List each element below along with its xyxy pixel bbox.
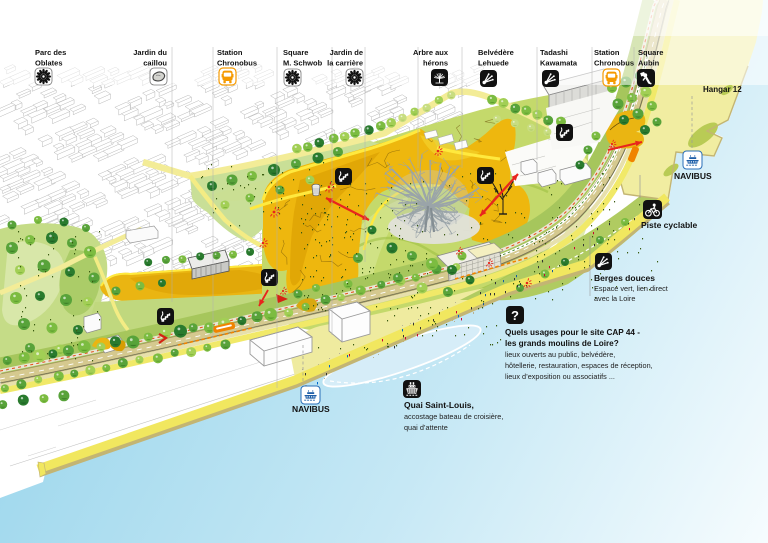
- svg-text:Quai Saint-Louis,: Quai Saint-Louis,: [404, 400, 474, 410]
- svg-text:hôtellerie, restauration, espa: hôtellerie, restauration, espaces de réc…: [505, 361, 653, 370]
- svg-text:accostage bateau de croisière,: accostage bateau de croisière,: [404, 412, 503, 421]
- svg-text:lieux d’exposition ou associat: lieux d’exposition ou associatifs ...: [505, 372, 615, 381]
- svg-text:Espace vert, lien direct: Espace vert, lien direct: [594, 284, 668, 293]
- svg-text:Berges douces: Berges douces: [594, 273, 655, 283]
- svg-text:quai d’attente: quai d’attente: [404, 423, 448, 432]
- svg-text:avec la Loire: avec la Loire: [594, 294, 635, 303]
- svg-text:Jardin dela carrière: Jardin dela carrière: [327, 48, 363, 68]
- svg-text:Piste cyclable: Piste cyclable: [641, 220, 698, 230]
- svg-text:Quels usages pour le site CAP: Quels usages pour le site CAP 44 -: [505, 328, 640, 337]
- svg-text:BelvédèreLehuede: BelvédèreLehuede: [478, 48, 514, 68]
- svg-text:NAVIBUS: NAVIBUS: [674, 171, 712, 181]
- svg-text:NAVIBUS: NAVIBUS: [292, 404, 330, 414]
- svg-text:?: ?: [511, 308, 519, 323]
- svg-text:Parc desOblates: Parc desOblates: [35, 48, 66, 68]
- svg-text:lieux ouverts au public, belvé: lieux ouverts au public, belvédère,: [505, 350, 615, 359]
- svg-text:Hangar 12: Hangar 12: [703, 85, 742, 94]
- svg-text:les grands moulins de Loire?: les grands moulins de Loire?: [505, 339, 619, 348]
